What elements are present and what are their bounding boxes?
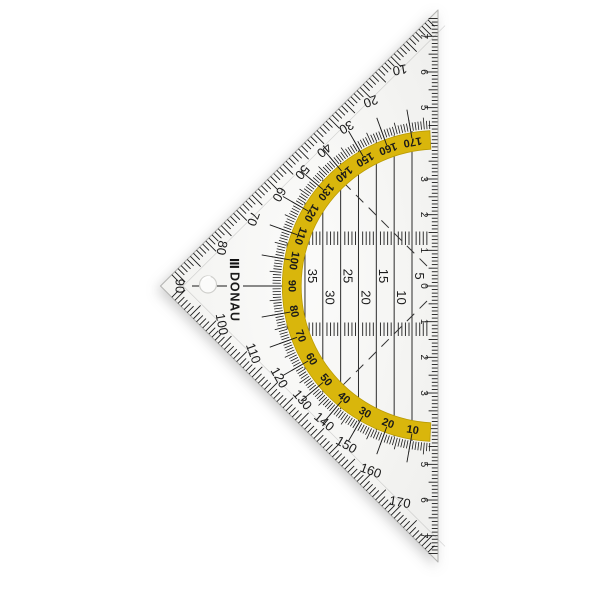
ruler-cm-down-2: 2 xyxy=(418,355,429,361)
ruler-cm-up-7: 7 xyxy=(418,34,429,40)
ruler-cm-up-6: 6 xyxy=(418,69,429,75)
ruler-zero: 0 xyxy=(418,283,429,289)
parallel-label-10mm: 10 xyxy=(394,290,409,304)
three-bars-icon xyxy=(230,259,239,261)
center-hole xyxy=(200,276,217,293)
ruler-cm-down-3: 3 xyxy=(418,390,429,396)
ruler-cm-down-6: 6 xyxy=(418,497,429,503)
parallel-label-25mm: 25 xyxy=(340,269,355,283)
ruler-cm-up-2: 2 xyxy=(418,212,429,218)
ruler-cm-up-5: 5 xyxy=(418,105,429,111)
ruler-cm-up-1: 1 xyxy=(418,248,429,254)
ruler-cm-down-7: 7 xyxy=(418,533,429,539)
three-bars-icon xyxy=(230,262,239,264)
parallel-label-35mm: 35 xyxy=(305,269,320,283)
degree-label-outer-10: 10 xyxy=(391,61,408,78)
three-bars-icon xyxy=(230,266,239,268)
degree-label-inner-90: 90 xyxy=(286,280,298,292)
parallel-label-20mm: 20 xyxy=(358,290,373,304)
ruler-cm-down-5: 5 xyxy=(418,462,429,468)
degree-label-inner-80: 80 xyxy=(287,304,301,318)
ruler-cm-up-3: 3 xyxy=(418,176,429,182)
degree-label-outer-90: 90 xyxy=(173,279,188,293)
parallel-label-30mm: 30 xyxy=(323,290,338,304)
parallel-label-15mm: 15 xyxy=(376,269,391,283)
geometry-set-square: 0 1 2 3 4 5 6 7 1 2 3 4 5 6 7 5 10 15 20… xyxy=(0,0,600,600)
brand-name: DONAU xyxy=(228,272,242,322)
product-photo: 0 1 2 3 4 5 6 7 1 2 3 4 5 6 7 5 10 15 20… xyxy=(0,0,600,600)
parallel-label-5mm: 5 xyxy=(412,272,427,279)
degree-label-inner-10: 10 xyxy=(406,423,420,437)
degree-label-outer-80: 80 xyxy=(213,239,230,256)
